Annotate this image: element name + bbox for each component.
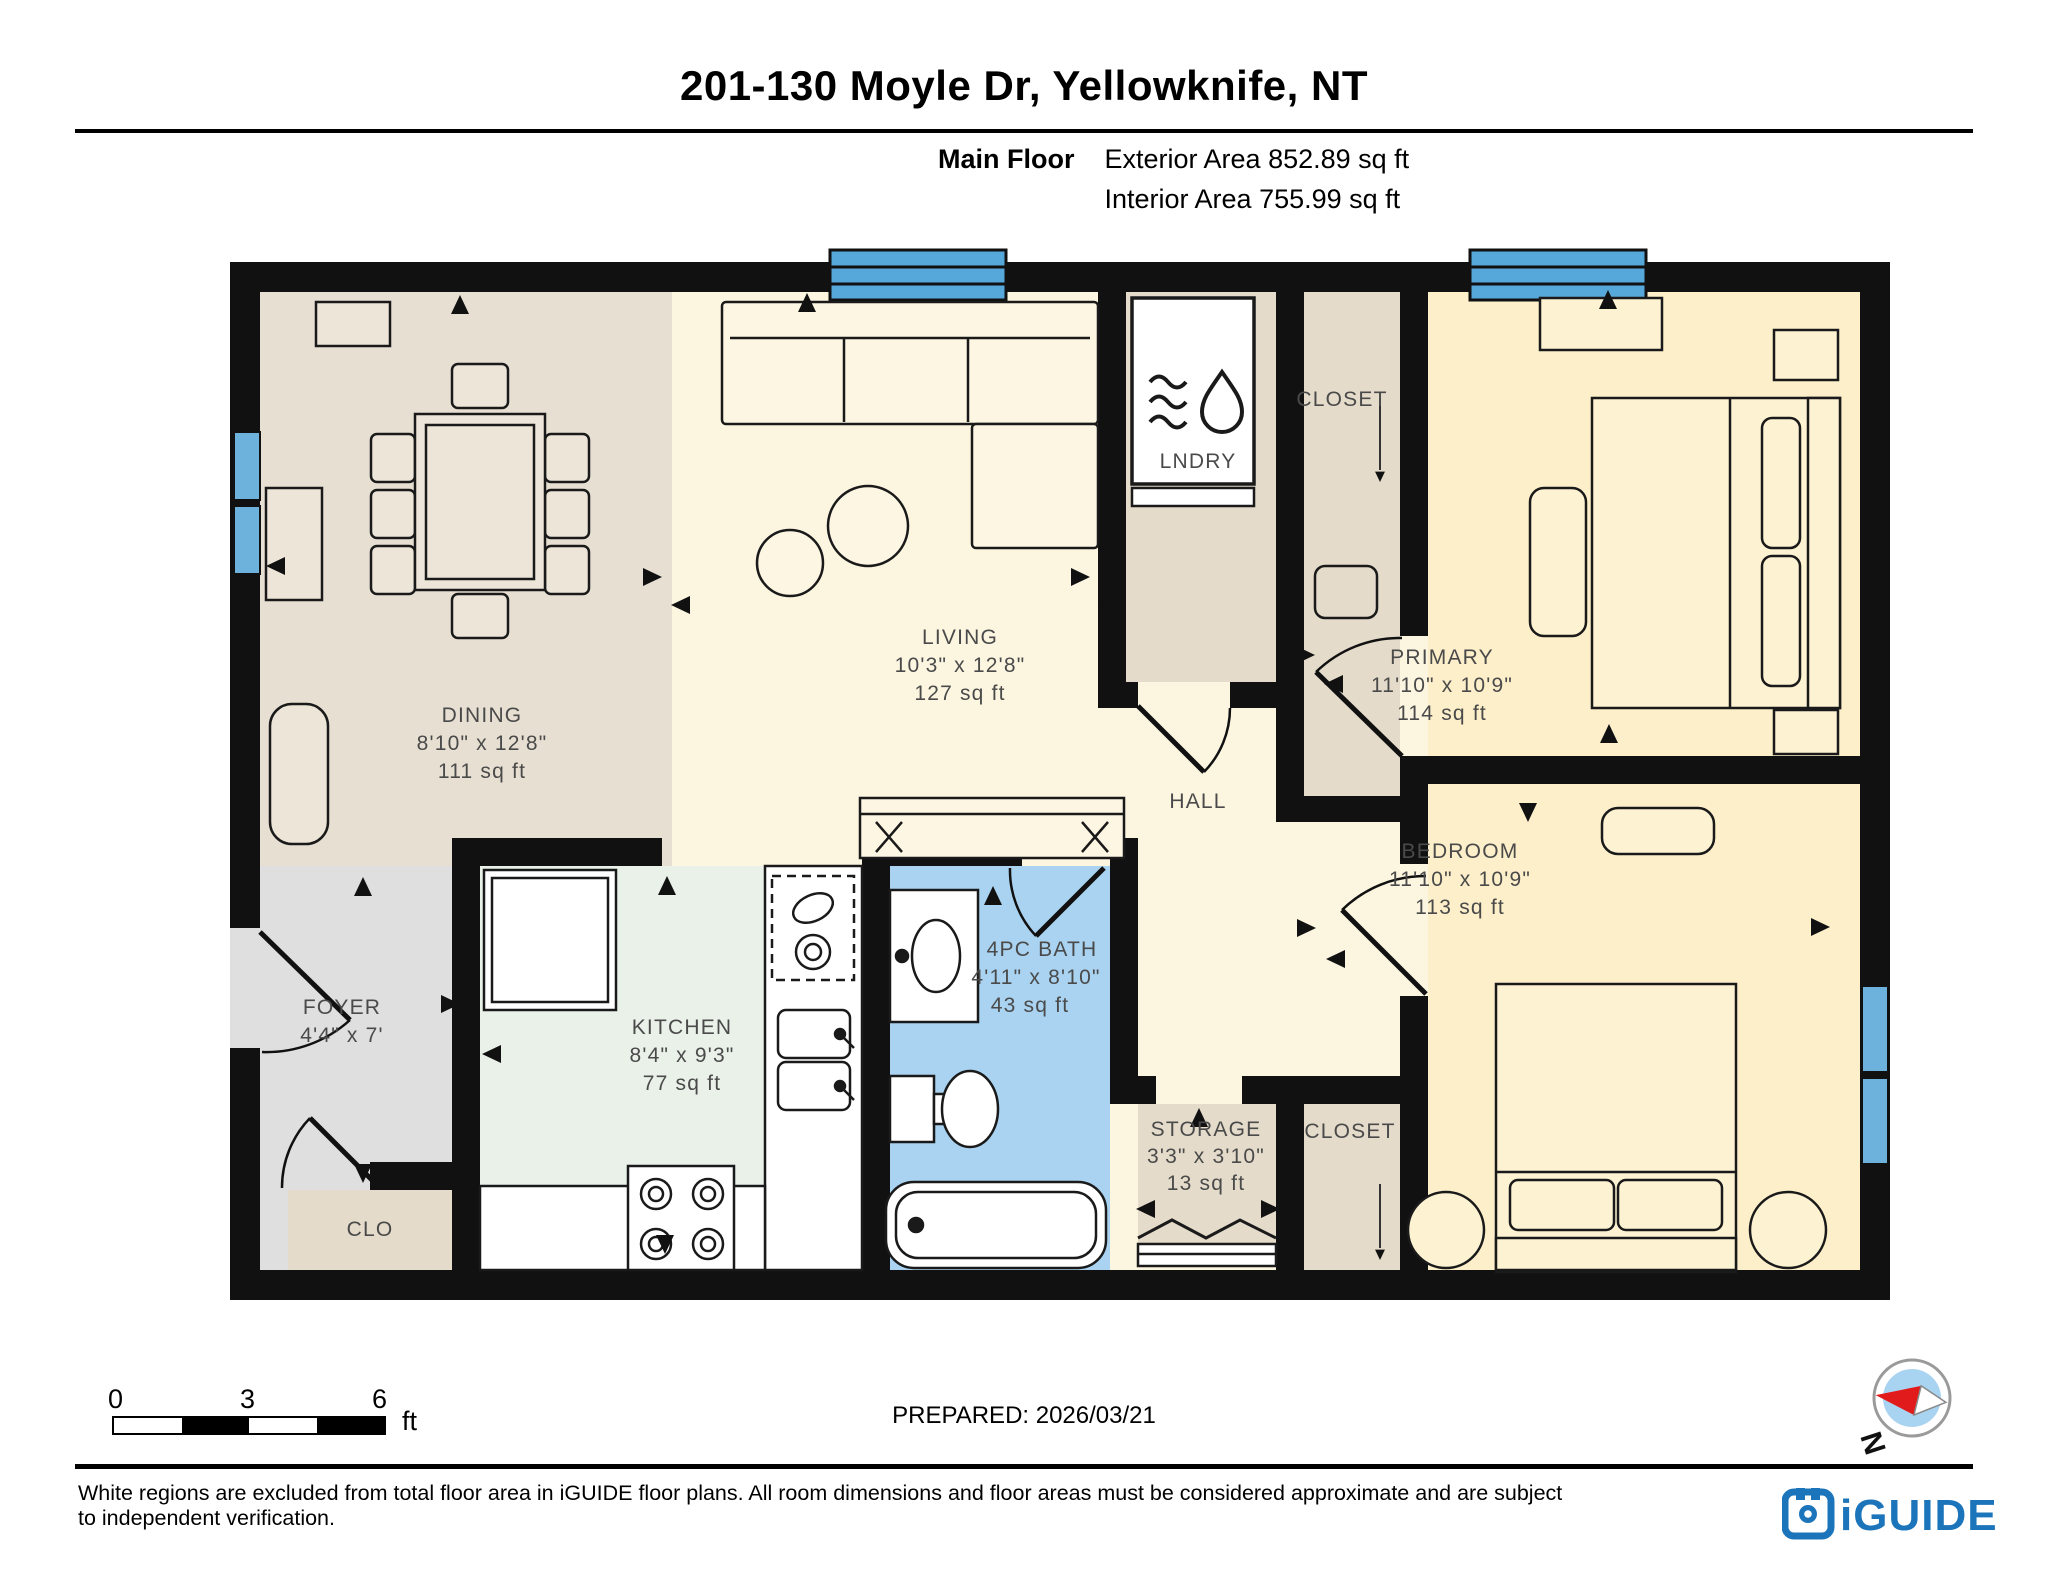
side-table [1750,1192,1826,1268]
ottoman [828,486,908,566]
room-label-closet-bottom: CLOSET [1304,1120,1395,1143]
svg-text:STORAGE: STORAGE [1151,1118,1262,1141]
svg-text:127 sq ft: 127 sq ft [914,682,1005,705]
side-table [1408,1192,1484,1268]
nightstand [1774,710,1838,754]
room-label-kitchen: KITCHEN 8'4" x 9'3" 77 sq ft [629,1016,734,1095]
interior-area: Interior Area 755.99 sq ft [1105,184,1410,215]
svg-text:FOYER: FOYER [303,996,381,1019]
bathtub [886,1182,1106,1268]
fridge [484,870,616,1010]
svg-text:4PC BATH: 4PC BATH [987,938,1098,961]
bench [1602,808,1714,854]
page-title: 201-130 Moyle Dr, Yellowknife, NT [0,62,2048,110]
iguide-logo: iGUIDE [1782,1484,2018,1544]
window-bedroom-right [1862,1078,1888,1164]
prepared-date: PREPARED: 2026/03/21 [0,1402,2048,1430]
exterior-area: Exterior Area 852.89 sq ft [1105,144,1410,175]
svg-text:11'10" x 10'9": 11'10" x 10'9" [1371,674,1513,697]
vanity-sink [890,890,978,1022]
svg-text:4'4" x 7': 4'4" x 7' [300,1024,383,1047]
svg-text:8'10" x 12'8": 8'10" x 12'8" [417,732,548,755]
floor-plan-page: 201-130 Moyle Dr, Yellowknife, NT Main F… [0,0,2048,1583]
floor-label: Main Floor [938,144,1075,175]
window-living-top [830,250,1006,300]
window-dining-left [234,432,260,500]
compass-n-label: N [1853,1428,1891,1456]
footer-divider [75,1464,1973,1469]
iguide-logo-text: iGUIDE [1840,1491,1998,1540]
primary-bed [1592,398,1840,708]
compass: N [1846,1352,1976,1456]
room-label-clo: CLO [347,1218,394,1241]
floor-summary: Main Floor Exterior Area 852.89 sq ft In… [938,144,1409,215]
svg-text:114 sq ft: 114 sq ft [1397,702,1487,725]
room-label-hall: HALL [1169,790,1226,813]
window-bedroom-right [1862,986,1888,1072]
disclaimer-text: White regions are excluded from total fl… [78,1481,1578,1531]
stove [628,1166,734,1270]
closet-bench [1315,566,1377,618]
room-label-closet-top: CLOSET [1296,388,1387,411]
svg-text:PRIMARY: PRIMARY [1390,646,1494,669]
window-dining-left [234,506,260,574]
svg-text:4'11" x 8'10": 4'11" x 8'10" [971,966,1100,989]
ottoman [757,530,823,596]
svg-text:43 sq ft: 43 sq ft [991,994,1069,1017]
header-divider [75,129,1973,133]
svg-text:DINING: DINING [442,704,523,727]
svg-text:77 sq ft: 77 sq ft [643,1072,721,1095]
floor-plan: DINING 8'10" x 12'8" 111 sq ft LIVING 10… [230,236,1890,1316]
svg-text:KITCHEN: KITCHEN [632,1016,733,1039]
svg-text:113 sq ft: 113 sq ft [1415,896,1505,919]
entry-opening [230,928,260,1048]
window-primary-top [1470,250,1646,300]
room-label-lndry: LNDRY [1160,450,1237,473]
svg-text:11'10" x 10'9": 11'10" x 10'9" [1389,868,1531,891]
svg-text:BEDROOM: BEDROOM [1402,840,1519,863]
svg-text:8'4" x 9'3": 8'4" x 9'3" [629,1044,734,1067]
nightstand [1774,330,1838,380]
svg-text:10'3" x 12'8": 10'3" x 12'8" [895,654,1026,677]
iguide-logo-icon [1785,1488,1831,1536]
svg-text:3'3" x 3'10": 3'3" x 3'10" [1147,1145,1265,1168]
svg-text:111 sq ft: 111 sq ft [438,760,526,783]
washer-dryer [1132,298,1254,506]
svg-text:LIVING: LIVING [922,626,998,649]
sofa [722,302,1098,424]
svg-text:13 sq ft: 13 sq ft [1167,1172,1245,1195]
bench [1530,488,1586,636]
dining-table [415,414,545,590]
